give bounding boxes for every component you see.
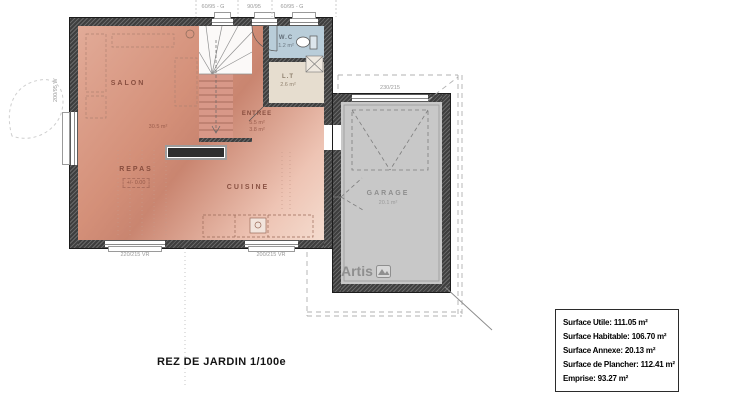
garage-door xyxy=(352,94,428,102)
fireplace xyxy=(165,145,227,160)
summary-label: Surface Habitable: xyxy=(563,332,630,341)
room-lt-floor xyxy=(269,62,324,103)
summary-value: 111.05 m² xyxy=(614,318,648,327)
summary-row: Surface Habitable: 106.70 m² xyxy=(563,330,674,344)
room-area-entree-1: 5.5 m² xyxy=(249,120,265,126)
dim-bottom-left: 220/215 VR xyxy=(120,252,149,258)
room-label-wc: W.C xyxy=(279,35,293,41)
window-top-3 xyxy=(290,18,318,26)
room-area-salon: 30.5 m² xyxy=(149,124,168,130)
level-marker: +/- 0.00 xyxy=(123,178,150,188)
room-area-lt: 2.6 m² xyxy=(280,82,296,88)
corner-diagonal-line xyxy=(445,287,492,330)
summary-row: Emprise: 93.27 m² xyxy=(563,372,674,386)
dim-top-left: 60/95 - G xyxy=(202,4,225,10)
room-label-lt: L.T xyxy=(282,74,294,80)
summary-label: Surface Annexe: xyxy=(563,346,623,355)
room-label-cuisine: CUISINE xyxy=(227,184,269,191)
room-label-repas: REPAS xyxy=(119,166,153,173)
garage-wall-left xyxy=(333,94,341,292)
room-label-garage: GARAGE xyxy=(367,190,410,197)
surface-summary-table: Surface Utile: 111.05 m² Surface Habitab… xyxy=(555,309,679,392)
dim-left: 200/95 W xyxy=(53,78,59,102)
garage-wall-bottom xyxy=(333,284,450,292)
partition-wc-lt xyxy=(269,58,324,62)
summary-value: 112.41 m² xyxy=(641,360,675,369)
summary-label: Surface de Plancher: xyxy=(563,360,639,369)
stair-winder xyxy=(199,26,252,74)
floor-plan-sheet: SALON 30.5 m² REPAS +/- 0.00 CUISINE ENT… xyxy=(0,0,750,415)
room-area-garage: 20.1 m² xyxy=(379,200,398,206)
dim-garage-door: 230/215 xyxy=(380,85,400,91)
builder-logo-icon xyxy=(376,265,391,278)
partition-stair-wc xyxy=(263,26,269,107)
summary-label: Emprise: xyxy=(563,374,596,383)
partition-stair-bottom xyxy=(199,138,252,142)
room-area-entree-2: 3.8 m² xyxy=(249,127,265,133)
window-left-sill xyxy=(62,112,70,165)
garage-wall-right xyxy=(442,94,450,292)
room-area-wc: 1.2 m² xyxy=(278,43,294,49)
stair-flight xyxy=(199,74,233,138)
window-left xyxy=(70,112,78,165)
partition-lt-entree xyxy=(263,103,324,107)
window-top-1-sill xyxy=(214,12,231,19)
summary-row: Surface de Plancher: 112.41 m² xyxy=(563,358,674,372)
summary-value: 93.27 m² xyxy=(598,374,628,383)
room-label-salon: SALON xyxy=(111,80,146,87)
window-top-2 xyxy=(252,18,277,26)
page-title: REZ DE JARDIN 1/100e xyxy=(157,356,286,368)
garage-passage-opening xyxy=(333,125,341,150)
dim-bottom-right: 200/215 VR xyxy=(256,252,285,258)
summary-row: Surface Utile: 111.05 m² xyxy=(563,316,674,330)
room-label-entree: ENTREE xyxy=(242,111,272,117)
window-top-3-sill xyxy=(292,12,316,19)
summary-row: Surface Annexe: 20.13 m² xyxy=(563,344,674,358)
builder-logo-text: Artis xyxy=(341,263,373,279)
dim-top-right: 60/95 - G xyxy=(281,4,304,10)
summary-value: 20.13 m² xyxy=(625,346,655,355)
builder-logo: Artis xyxy=(341,263,391,279)
room-wc-floor xyxy=(269,26,324,58)
window-top-2-sill xyxy=(254,12,275,19)
summary-value: 106.70 m² xyxy=(632,332,667,341)
summary-label: Surface Utile: xyxy=(563,318,612,327)
dim-top-mid: 90/95 xyxy=(247,4,261,10)
window-top-1 xyxy=(212,18,233,26)
